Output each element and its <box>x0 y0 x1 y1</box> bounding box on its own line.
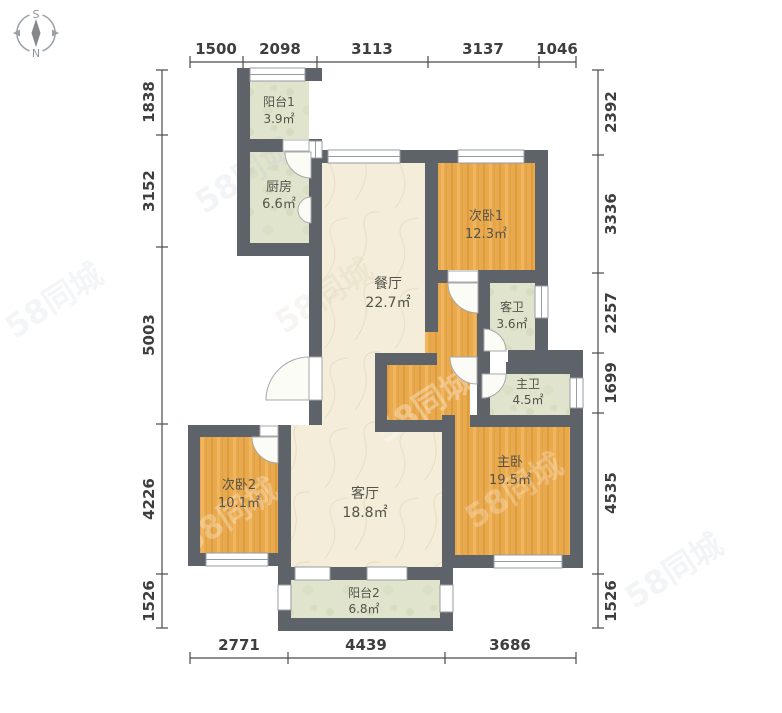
floor-balcony1 <box>250 81 309 139</box>
wall-segment <box>442 415 455 567</box>
door-arc-entry <box>266 357 309 400</box>
dim-label-top: 3113 <box>351 40 393 58</box>
room-area-kitchen: 6.6㎡ <box>262 197 296 212</box>
dimensions-left: 1838 3152 5003 4226 1526 <box>140 70 168 628</box>
room-name-bedroom2: 次卧2 <box>222 477 256 493</box>
room-name-balcony2: 阳台2 <box>348 585 380 600</box>
dim-label-right: 1526 <box>602 580 620 622</box>
wall-segment <box>425 150 438 332</box>
dim-label-right: 3336 <box>602 193 620 235</box>
balcony-door-opening <box>367 567 407 580</box>
wall-segment <box>535 150 548 286</box>
floor-plan-canvas: 58同城 58同城 58同城 58同城 58同城 58同城 58同城 <box>0 0 782 713</box>
dim-label-bottom: 4439 <box>345 636 387 654</box>
balcony-door-opening <box>295 567 330 580</box>
window <box>278 585 291 610</box>
watermark: 58同城 <box>618 525 730 616</box>
room-area-bedroom2: 10.1㎡ <box>218 496 260 511</box>
dim-label-left: 4226 <box>140 478 158 520</box>
wall-segment <box>309 256 322 357</box>
room-area-master-bath: 4.5㎡ <box>512 393 543 407</box>
room-name-living: 客厅 <box>351 485 379 502</box>
watermark: 58同城 <box>0 255 110 346</box>
door-leaf-entry <box>309 357 322 400</box>
room-area-bedroom1: 12.3㎡ <box>465 227 507 242</box>
wall-segment <box>237 68 250 256</box>
wall-segment <box>188 425 200 566</box>
dim-label-top: 1046 <box>536 40 578 58</box>
dimensions-top: 1500 2098 3113 3137 1046 <box>190 40 578 68</box>
wall-segment <box>330 567 367 580</box>
wall-segment <box>278 618 453 631</box>
door-leaf-bedroom1 <box>448 271 478 282</box>
dimensions-right: 2392 3336 2257 1699 4535 1526 <box>592 70 620 628</box>
dim-label-right: 2257 <box>602 292 620 334</box>
dim-label-left: 5003 <box>140 314 158 356</box>
room-name-bedroom1: 次卧1 <box>469 208 503 224</box>
wall-segment <box>309 400 322 425</box>
wall-segment <box>570 408 583 567</box>
dim-label-right: 2392 <box>602 91 620 133</box>
room-name-master-bedroom: 主卧 <box>497 455 523 470</box>
room-name-dining: 餐厅 <box>374 276 402 292</box>
wall-segment <box>470 415 583 427</box>
compass-south-label: S <box>33 8 40 21</box>
dim-label-top: 3137 <box>462 40 504 58</box>
room-name-master-bath: 主卫 <box>516 377 540 391</box>
door-leaf-balcony1 <box>283 140 309 151</box>
wall-segment <box>570 350 583 378</box>
window <box>440 585 453 612</box>
dim-label-bottom: 3686 <box>489 636 531 654</box>
dim-label-left: 1838 <box>140 81 158 123</box>
wall-segment <box>440 612 453 631</box>
room-area-master-bedroom: 19.5㎡ <box>489 473 531 488</box>
dim-label-right: 4535 <box>602 472 620 514</box>
wall-segment <box>375 353 387 432</box>
dim-label-right: 1699 <box>602 362 620 404</box>
room-area-guest-bath: 3.6㎡ <box>496 317 527 331</box>
door-leaf-bedroom2 <box>260 426 278 436</box>
room-name-guest-bath: 客卫 <box>500 299 524 314</box>
dim-label-top: 1500 <box>195 40 237 58</box>
wall-segment <box>278 567 291 585</box>
wall-segment <box>278 425 291 567</box>
wall-segment <box>440 567 453 585</box>
dimensions-bottom: 2771 4439 3686 <box>190 636 576 664</box>
room-area-balcony1: 3.9㎡ <box>263 112 294 126</box>
dim-label-bottom: 2771 <box>218 636 260 654</box>
dim-label-left: 3152 <box>140 170 158 212</box>
wall-segment <box>535 318 548 362</box>
room-name-balcony1: 阳台1 <box>263 94 295 109</box>
wall-segment <box>278 610 291 631</box>
room-area-balcony2: 6.8㎡ <box>348 602 379 616</box>
dim-label-left: 1526 <box>140 580 158 622</box>
floor-plan-svg: 58同城 58同城 58同城 58同城 58同城 58同城 58同城 <box>0 0 782 713</box>
dim-label-top: 2098 <box>259 40 301 58</box>
wall-segment <box>322 150 328 163</box>
compass: S N <box>13 8 59 60</box>
room-name-kitchen: 厨房 <box>266 179 292 195</box>
compass-north-label: N <box>32 47 40 60</box>
room-area-living: 18.8㎡ <box>342 505 387 521</box>
room-area-dining: 22.7㎡ <box>365 295 410 311</box>
compass-needle <box>32 19 41 47</box>
